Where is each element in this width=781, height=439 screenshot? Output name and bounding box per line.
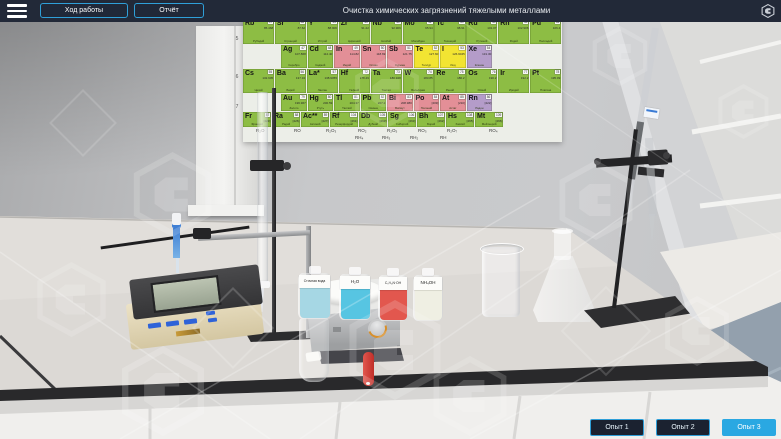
element-cell: Zr4091.22Цирконий <box>339 19 370 44</box>
element-cell: At85[210]Астат <box>440 94 466 111</box>
ph-electrode-cap <box>172 213 181 228</box>
periodic-table-grid: Rb3785.468РубидийSr3887.62СтронцийY3988.… <box>243 12 562 142</box>
stir-bar-vial[interactable] <box>363 352 374 386</box>
electrode-clamp <box>193 228 211 239</box>
element-cell: Rh45102.906Родий <box>498 19 529 44</box>
burette-stand-pole <box>272 88 276 334</box>
element-cell: Sb51121.75Сурьма <box>387 45 413 68</box>
ph-electrode-tip <box>176 258 179 273</box>
element-cell: Cd48112.40Кадмий <box>308 45 334 68</box>
page-title: Очистка химических загрязнений тяжелыми … <box>142 0 751 22</box>
element-cell: Sg106[263]Сиборгий <box>388 112 416 127</box>
element-cell: Hs108[265]Хассий <box>446 112 474 127</box>
reagent-bottle[interactable]: Сточная вода <box>298 266 331 320</box>
periodic-table-poster: 567 МедьЦинкГаллийГерманийМышьякСеленБро… <box>243 12 562 142</box>
window-mullion <box>234 26 236 216</box>
bottle-liquid <box>341 285 370 318</box>
element-cell: Ra88[226]Радий <box>272 112 300 127</box>
experiment-3-button[interactable]: Опыт 3 <box>722 419 776 436</box>
element-cell: Bh107[262]Борий <box>417 112 445 127</box>
element-cell: Db105[262]Дубний <box>359 112 387 127</box>
period-number: 6 <box>232 74 242 80</box>
hamburger-icon[interactable] <box>7 4 27 18</box>
element-cell: Nb4192.906Ниобий <box>371 19 402 44</box>
element-cell: Pb82207.2Свинец <box>361 94 387 111</box>
bottle-label: NH₄OH <box>414 277 442 290</box>
element-cell: Pt78195.09Платина <box>530 69 561 93</box>
oxide-formula: RO₂ <box>358 128 367 133</box>
element-cell: Y3988.906Иттрий <box>307 19 338 44</box>
beaker-rim <box>480 243 524 255</box>
hydride-formula-row: RH₄RH₃RH₂RH <box>243 135 562 142</box>
bottle-label: H₂O <box>340 276 370 289</box>
element-cell: Ag47107.868Серебро <box>281 45 307 68</box>
element-cell: La*57138.9055Лантан <box>307 69 338 93</box>
brand-logo-icon <box>761 4 775 18</box>
top-bar: Ход работы Отчёт Очистка химических загр… <box>0 0 781 22</box>
burette-clamp <box>250 160 284 171</box>
element-cell: Tc4398.91Технеций <box>434 19 465 44</box>
experiment-1-button[interactable]: Опыт 1 <box>590 419 644 436</box>
element-cell: Au79196.967Золото <box>281 94 307 111</box>
clamp-bolt <box>663 152 670 159</box>
simulation-stage: 567 МедьЦинкГаллийГерманийМышьякСеленБро… <box>0 0 781 439</box>
element-cell: Xe54131.30Ксенон <box>467 45 493 68</box>
element-cell: Pd46106.4Палладий <box>530 19 561 44</box>
bottle-liquid <box>415 286 442 319</box>
element-cell: Mo4295.94Молибден <box>403 19 434 44</box>
element-cell: Tl81204.37Таллий <box>334 94 360 111</box>
flask-neck <box>554 230 571 260</box>
ph-electrode[interactable] <box>173 228 180 258</box>
experiment-2-button[interactable]: Опыт 2 <box>656 419 710 436</box>
oxide-formula-row: R₂OROR₂O₃RO₂R₂O₅RO₃R₂O₇RO₄ <box>243 128 562 135</box>
element-cell: Rf104[261]Резерфордий <box>330 112 358 127</box>
element-cell: W74183.85Вольфрам <box>403 69 434 93</box>
element-cell: I53126.9045Иод <box>440 45 466 68</box>
reagent-bottle[interactable]: C₉H₆N·OH <box>378 268 408 322</box>
oxide-formula: R₂O₃ <box>326 128 336 133</box>
oxide-formula: R₂O₇ <box>447 128 457 133</box>
element-cell: Po84[209]Полоний <box>414 94 440 111</box>
element-cell: Bi83208.980Висмут <box>387 94 413 111</box>
element-cell: Re75186.2Рений <box>434 69 465 93</box>
test-tube[interactable] <box>299 318 329 382</box>
erlenmeyer-flask[interactable] <box>533 230 595 322</box>
element-cell: Ta73180.948Тантал <box>371 69 402 93</box>
element-cell: In49114.82Индий <box>334 45 360 68</box>
element-cell: Ac**89[227]Актиний <box>301 112 329 127</box>
hydride-formula: RH₃ <box>382 135 390 140</box>
element-cell: Te52127.60Теллур <box>414 45 440 68</box>
stirrer-power-button[interactable] <box>333 327 341 332</box>
oxide-formula: RO₄ <box>489 128 498 133</box>
element-cell: Os76190.2Осмий <box>466 69 497 93</box>
burette-clamp-knob <box>283 162 291 170</box>
element-cell: Sn50118.69Олово <box>361 45 387 68</box>
beaker[interactable] <box>482 247 520 317</box>
bottle-liquid <box>380 286 407 319</box>
element-cell: Cs55132.905Цезий <box>243 69 274 93</box>
progress-button[interactable]: Ход работы <box>40 3 128 18</box>
burette[interactable] <box>257 92 268 282</box>
element-cell: Rn86[222]Радон <box>467 94 493 111</box>
oxide-formula: R₂O₅ <box>387 128 397 133</box>
period-number: 5 <box>232 36 242 42</box>
element-cell: Sr3887.62Стронций <box>275 19 306 44</box>
element-cell: Mt109[266]Мейтнерий <box>475 112 503 127</box>
period-number: 7 <box>232 104 242 110</box>
reagent-bottle[interactable]: H₂O <box>339 267 371 321</box>
element-cell: Hg80200.59Ртуть <box>308 94 334 111</box>
hydride-formula: RH <box>440 135 447 140</box>
oxide-formula: RO <box>294 128 301 133</box>
element-cell: Hf72178.49Гафний <box>339 69 370 93</box>
background-burette-label <box>643 107 659 119</box>
bottle-label: C₉H₆N·OH <box>379 277 407 290</box>
bottle-liquid <box>300 284 330 317</box>
element-cell: Ru44101.07Рутений <box>466 19 497 44</box>
clamp-bolt <box>594 158 601 165</box>
element-cell: Ir77192.2Иридий <box>498 69 529 93</box>
element-cell: Ba56137.34Барий <box>275 69 306 93</box>
hydride-formula: RH₂ <box>410 135 418 140</box>
element-cell: Rb3785.468Рубидий <box>243 19 274 44</box>
window-sill <box>188 205 264 216</box>
oxide-formula: RO₃ <box>418 128 427 133</box>
hydride-formula: RH₄ <box>355 135 363 140</box>
bottle-label: Сточная вода <box>299 275 330 288</box>
reagent-bottle[interactable]: NH₄OH <box>413 268 443 322</box>
